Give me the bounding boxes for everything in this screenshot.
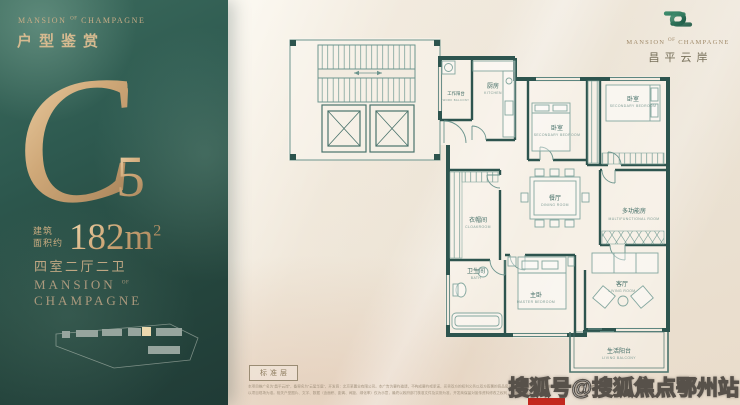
room-label-en: DINING ROOM <box>541 203 569 207</box>
room-label-en: LIVING ROOM <box>608 289 635 293</box>
room-label-cn: 卫生间 <box>467 267 485 275</box>
watermark: 搜狐号@搜狐焦点鄂州站 <box>509 372 739 402</box>
room-label-en: MASTER BEDROOM <box>517 300 555 304</box>
room-label-cn: 厨房 <box>487 82 499 90</box>
bed-secondary-2 <box>606 85 660 121</box>
area-block: 建筑 面积约 182m2 <box>33 219 161 256</box>
unit-number: 5 <box>116 148 145 206</box>
room-label-cn: 主卧 <box>530 291 542 299</box>
area-label: 建筑 面积约 <box>33 226 63 249</box>
room-label-en: SECONDARY BEDROOM <box>534 133 581 137</box>
room-label-cn: 卧室 <box>551 124 563 132</box>
room-label-cn: 工作阳台 <box>447 90 465 97</box>
layout-description: 四室二厅二卫 <box>34 256 127 275</box>
room-label-cn: 餐厅 <box>549 194 561 202</box>
room-label-cn: 多功能房 <box>622 207 646 215</box>
room-label-cn: 衣帽间 <box>469 216 487 224</box>
area-value: 182m2 <box>69 219 161 256</box>
brand-line-bottom: MANSION OF CHAMPAGNE <box>34 277 228 309</box>
room-label-en: CLOAKROOM <box>465 225 491 229</box>
room-label-en: KITCHEN <box>484 91 502 95</box>
room-label-en: WORK BALCONY <box>443 98 470 102</box>
site-plan-minimap <box>52 318 202 378</box>
brand-of: OF <box>70 16 77 21</box>
room-label-cn: 卧室 <box>627 95 639 103</box>
room-label-en: LIVING BALCONY <box>602 356 636 360</box>
site-buildings <box>62 328 182 354</box>
room-label-cn: 客厅 <box>616 280 628 288</box>
room-label-en: SECONDARY BEDROOM <box>610 104 657 108</box>
floor-type-tag: 标准层 <box>249 365 298 381</box>
room-label-en: BATH <box>471 276 482 280</box>
stairs <box>318 45 415 102</box>
brand-left: MANSION <box>18 16 67 25</box>
washer <box>442 61 455 74</box>
room-label-en: MULTIFUNCTIONAL ROOM <box>609 217 660 221</box>
floor-plan: 工作阳台 WORK BALCONY 厨房 KITCHEN 卧室 SECONDAR… <box>270 25 680 377</box>
room-label-cn: 生活阳台 <box>607 347 631 355</box>
brand-right: CHAMPAGNE <box>81 16 145 25</box>
site-building-highlighted <box>142 327 151 336</box>
brand-line-top: MANSION OF CHAMPAGNE <box>18 16 146 25</box>
sidebar: MANSION OF CHAMPAGNE 户型鉴赏 C 5 建筑 面积约 182… <box>0 0 228 405</box>
